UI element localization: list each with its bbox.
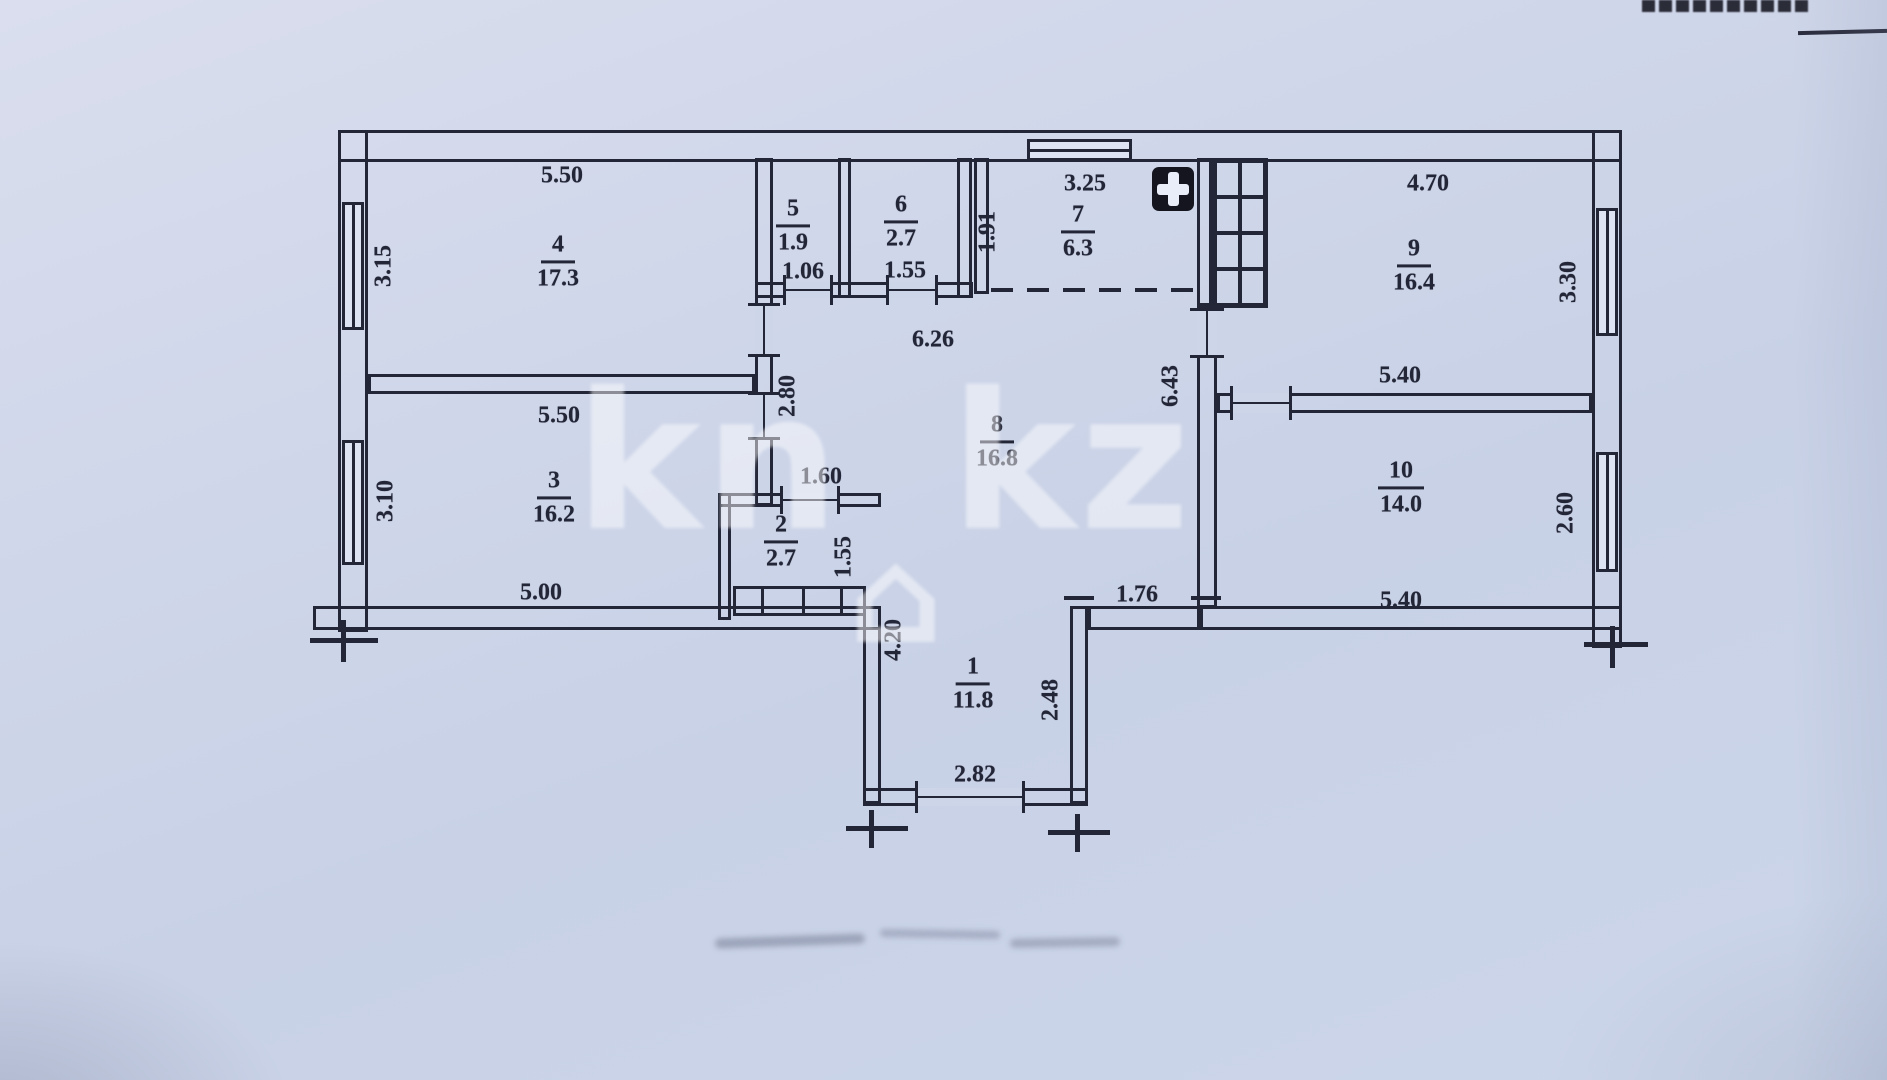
door-opening-room9 <box>1197 310 1217 356</box>
room-6-label: 6 2.7 <box>884 191 918 252</box>
dim-r10-top: 5.40 <box>1379 363 1421 390</box>
room-9-label: 9 16.4 <box>1393 235 1435 296</box>
window-room4 <box>342 202 364 330</box>
wall-end-marker <box>1584 642 1648 647</box>
wall-end-marker <box>1610 626 1615 668</box>
room-5-label: 5 1.9 <box>776 195 810 256</box>
room-area: 17.3 <box>537 265 579 293</box>
room-number: 1 <box>956 653 990 685</box>
room-3-label: 3 16.2 <box>533 467 575 528</box>
dim-r3-left: 3.10 <box>373 480 400 522</box>
room-number: 5 <box>776 195 810 227</box>
handwriting-smudge <box>1010 937 1120 948</box>
window-room7 <box>1027 139 1132 161</box>
dim-r1-top: 1.76 <box>1116 582 1158 609</box>
dim-r1-left: 4.20 <box>881 619 908 661</box>
room6-right-wall <box>957 158 972 298</box>
room7-right-wall <box>1197 158 1212 306</box>
room-10-label: 10 14.0 <box>1378 457 1424 518</box>
dim-hall-top: 6.26 <box>912 327 954 354</box>
room-area: 16.8 <box>976 445 1018 473</box>
dim-r7-left: 1.91 <box>975 211 1002 253</box>
handwriting-smudge <box>715 933 865 948</box>
dim-r9-top: 4.70 <box>1407 171 1449 198</box>
dim-r2-right: 1.55 <box>831 536 858 578</box>
room-number: 2 <box>764 511 798 543</box>
room-area: 16.2 <box>533 501 575 529</box>
room-7-label: 7 6.3 <box>1061 201 1095 262</box>
room-4-label: 4 17.3 <box>537 231 579 292</box>
wall-end-marker <box>846 826 908 831</box>
divider-room4-room3 <box>368 374 755 394</box>
partition-room5-room6 <box>838 158 851 298</box>
dashed-boundary-line <box>991 288 1197 292</box>
room-number: 4 <box>541 231 575 263</box>
dim-r1-right: 2.48 <box>1038 679 1065 721</box>
dim-tick <box>1191 596 1221 600</box>
dim-r10-bottom: 5.40 <box>1380 588 1422 615</box>
room-8-label: 8 16.8 <box>976 411 1018 472</box>
wall-end-marker <box>341 620 346 662</box>
dim-tick <box>1064 596 1094 600</box>
dim-r9-right: 3.30 <box>1556 261 1583 303</box>
room-area: 2.7 <box>884 225 918 253</box>
window-room3 <box>342 440 364 565</box>
room-2-label: 2 2.7 <box>764 511 798 572</box>
dim-r5-bottom: 1.06 <box>782 259 824 286</box>
entrance-door-opening <box>917 788 1023 806</box>
room-number: 3 <box>537 467 571 499</box>
stamp-underline <box>1798 29 1887 35</box>
room-area: 11.8 <box>953 687 994 715</box>
bathtub <box>733 586 866 616</box>
cut-off-stamp <box>1642 0 1810 12</box>
handwriting-smudge <box>880 929 1000 939</box>
room-number: 10 <box>1378 457 1424 489</box>
door-opening-room2 <box>782 493 838 507</box>
door-opening-room10 <box>1232 393 1290 413</box>
dim-hall-left: 2.80 <box>775 375 802 417</box>
room-1-label: 1 11.8 <box>953 653 994 714</box>
dim-r3-top: 5.50 <box>538 403 580 430</box>
dim-r4-left: 3.15 <box>371 245 398 287</box>
room1-left-wall <box>863 606 881 804</box>
dim-hall-right: 6.43 <box>1158 365 1185 407</box>
floor-plan-scan: 4 17.3 3 16.2 5 1.9 6 2.7 7 6.3 8 16.8 9… <box>0 0 1887 1080</box>
dim-r1-bottom: 2.82 <box>954 762 996 789</box>
room-number: 9 <box>1397 235 1431 267</box>
window-room9 <box>1596 208 1618 336</box>
dim-r4-top: 5.50 <box>541 163 583 190</box>
room2-left-wall <box>718 493 731 620</box>
room-number: 7 <box>1061 201 1095 233</box>
room-area: 1.9 <box>776 229 810 257</box>
dim-r10-right: 2.60 <box>1553 492 1580 534</box>
door-opening-room4 <box>755 305 773 355</box>
room-area: 14.0 <box>1378 491 1424 519</box>
room-area: 2.7 <box>764 545 798 573</box>
wall-bottom-mid <box>1088 606 1200 630</box>
vent-icon <box>1152 167 1194 211</box>
dim-r7-top: 3.25 <box>1064 171 1106 198</box>
dim-lobby: 1.60 <box>800 464 842 491</box>
room1-right-wall <box>1070 606 1088 804</box>
wall-end-marker <box>869 810 874 848</box>
dim-r3-bottom: 5.00 <box>520 580 562 607</box>
vent-shaft-grid <box>1212 158 1268 308</box>
dim-r6-bottom: 1.55 <box>884 258 926 285</box>
room-area: 6.3 <box>1061 235 1095 263</box>
wall-end-marker <box>1075 814 1080 852</box>
room-number: 6 <box>884 191 918 223</box>
window-room10 <box>1596 452 1618 572</box>
door-opening-room3 <box>755 394 773 438</box>
room-number: 8 <box>980 411 1014 443</box>
room-area: 16.4 <box>1393 269 1435 297</box>
